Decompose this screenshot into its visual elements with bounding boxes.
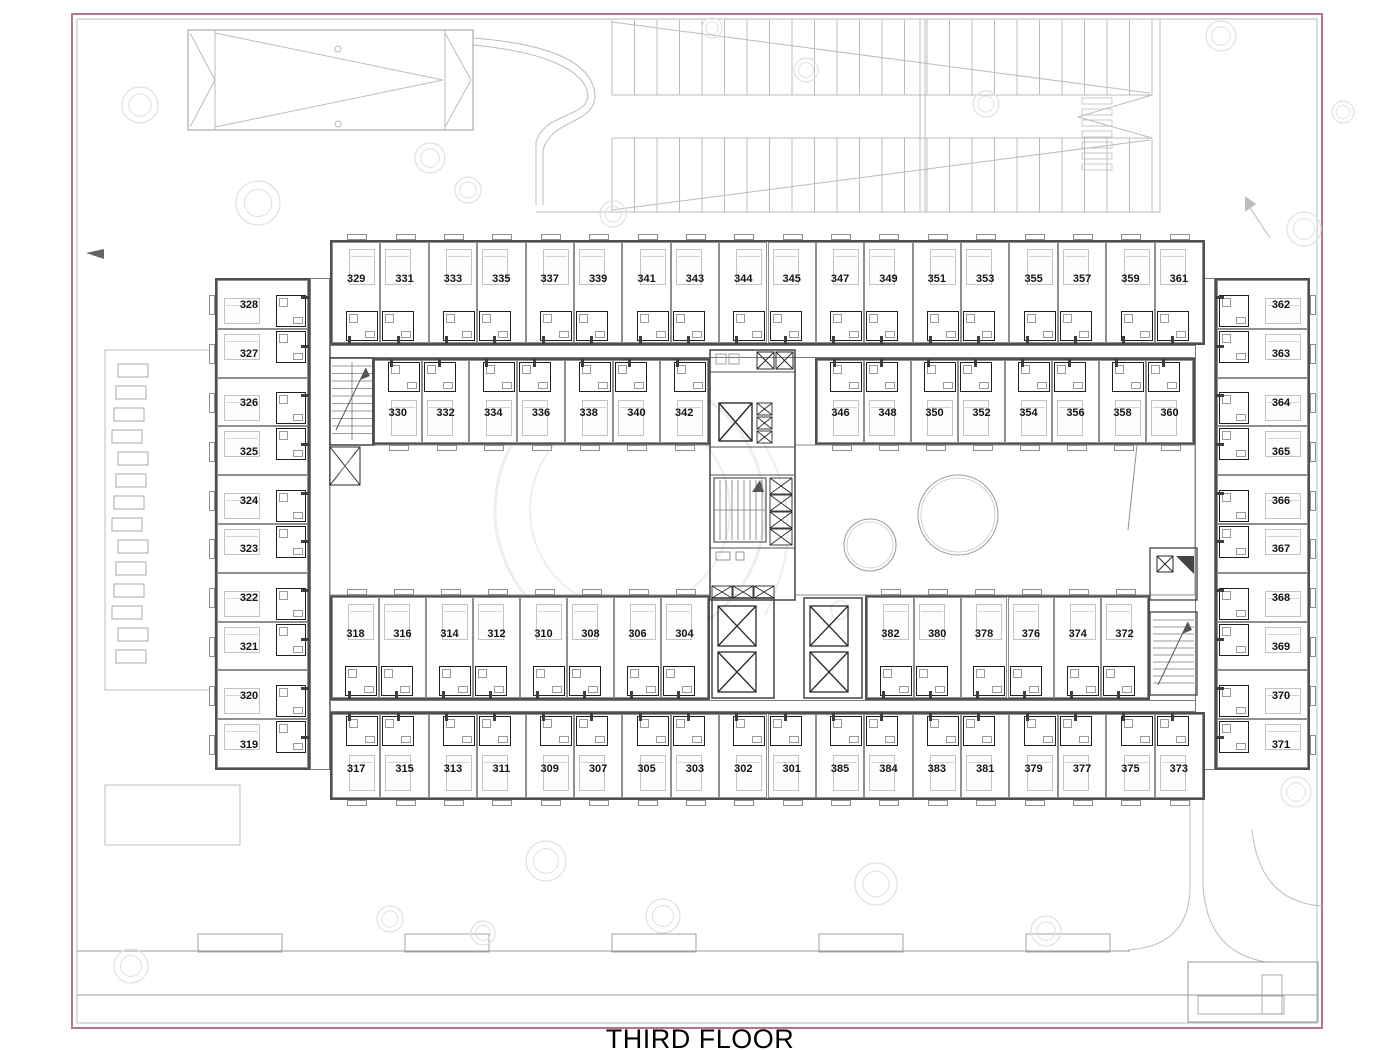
room-346: 346 [817, 360, 864, 443]
room-number-label: 370 [1252, 690, 1310, 702]
door-mark [1122, 336, 1125, 344]
room-379: 379 [1009, 714, 1057, 798]
room-308: 308 [567, 597, 614, 698]
room-380: 380 [914, 597, 961, 698]
balcony-icon [1069, 589, 1089, 595]
door-mark [301, 345, 309, 348]
door-mark [542, 336, 545, 344]
balcony-icon [347, 800, 367, 806]
room-347: 347 [816, 242, 864, 343]
balcony-icon [1020, 445, 1040, 451]
balcony-icon [975, 589, 995, 595]
door-mark [1216, 736, 1224, 739]
door-mark [880, 336, 883, 344]
door-mark [639, 336, 642, 344]
bathroom-pod [276, 588, 306, 620]
room-number-label: 327 [220, 348, 278, 360]
room-number-label: 333 [430, 273, 476, 285]
balcony-icon [209, 491, 215, 511]
balcony-icon [879, 445, 899, 451]
room-355: 355 [1009, 242, 1057, 343]
door-mark [929, 691, 932, 699]
room-number-label: 334 [470, 407, 516, 419]
room-333: 333 [429, 242, 477, 343]
room-number-label: 316 [380, 628, 425, 640]
room-number-label: 356 [1053, 407, 1098, 419]
door-mark [1216, 492, 1224, 495]
door-mark [927, 359, 930, 367]
balcony-icon [492, 234, 512, 240]
room-360: 360 [1146, 360, 1193, 443]
corridor [330, 345, 1205, 358]
room-325: 325 [217, 426, 308, 475]
room-317: 317 [332, 714, 380, 798]
door-mark [1026, 713, 1029, 721]
bathroom-pod [276, 392, 306, 424]
balcony-icon [879, 234, 899, 240]
room-342: 342 [660, 360, 708, 443]
balcony-icon [881, 589, 901, 595]
canopy-roof [188, 30, 473, 130]
door-mark [1216, 638, 1224, 641]
balcony-icon [1121, 800, 1141, 806]
room-number-label: 385 [817, 763, 863, 775]
room-376: 376 [1008, 597, 1055, 698]
room-343: 343 [671, 242, 719, 343]
room-number-label: 309 [527, 763, 573, 775]
door-mark [590, 336, 593, 344]
room-304: 304 [661, 597, 708, 698]
door-mark [1021, 359, 1024, 367]
room-332: 332 [422, 360, 470, 443]
room-377: 377 [1058, 714, 1106, 798]
balcony-icon [209, 735, 215, 755]
room-number-label: 345 [769, 273, 815, 285]
room-348: 348 [864, 360, 911, 443]
balcony-icon [209, 442, 215, 462]
room-316: 316 [379, 597, 426, 698]
balcony-icon [686, 800, 706, 806]
room-number-label: 307 [575, 763, 621, 775]
balcony-icon [1310, 539, 1316, 559]
room-356: 356 [1052, 360, 1099, 443]
balcony-icon [444, 234, 464, 240]
room-number-label: 348 [865, 407, 910, 419]
room-number-label: 358 [1100, 407, 1145, 419]
room-number-label: 377 [1059, 763, 1105, 775]
balcony-icon [627, 445, 647, 451]
door-mark [581, 359, 584, 367]
balcony-icon [1310, 295, 1316, 315]
room-number-label: 357 [1059, 273, 1105, 285]
bathroom-pod [276, 295, 306, 327]
balcony-icon [389, 445, 409, 451]
corridor [330, 700, 1205, 712]
room-314: 314 [426, 597, 473, 698]
room-number-label: 362 [1252, 299, 1310, 311]
door-mark [301, 736, 309, 739]
building-core-linework [0, 0, 1400, 1050]
room-number-label: 340 [614, 407, 660, 419]
curved-road [473, 38, 1160, 212]
balcony-icon [879, 800, 899, 806]
elevator-bank [712, 586, 862, 698]
room-349: 349 [864, 242, 912, 343]
room-384: 384 [864, 714, 912, 798]
room-number-label: 373 [1156, 763, 1202, 775]
balcony-icon [541, 800, 561, 806]
balcony-icon [396, 800, 416, 806]
room-number-label: 337 [527, 273, 573, 285]
room-351: 351 [913, 242, 961, 343]
balcony-icon [629, 589, 649, 595]
balcony-icon [1310, 735, 1316, 755]
room-334: 334 [469, 360, 517, 443]
balcony-icon [1073, 800, 1093, 806]
balcony-icon [589, 234, 609, 240]
balcony-icon [1170, 234, 1190, 240]
room-number-label: 347 [817, 273, 863, 285]
door-mark [628, 359, 631, 367]
room-number-label: 349 [865, 273, 911, 285]
corridor [310, 278, 330, 770]
room-366: 366 [1217, 475, 1308, 524]
floor-title: THIRD FLOOR [0, 1024, 1400, 1050]
room-320: 320 [217, 670, 308, 719]
room-339: 339 [574, 242, 622, 343]
door-mark [882, 691, 885, 699]
balcony-icon [1114, 445, 1134, 451]
balcony-icon [675, 445, 695, 451]
balcony-icon [209, 295, 215, 315]
door-mark [1171, 336, 1174, 344]
room-number-label: 313 [430, 763, 476, 775]
balcony-icon [394, 589, 414, 595]
balcony-icon [535, 589, 555, 595]
door-mark [1216, 589, 1224, 592]
room-323: 323 [217, 524, 308, 573]
door-mark [880, 713, 883, 721]
door-mark [832, 713, 835, 721]
balcony-icon [589, 800, 609, 806]
door-mark [301, 687, 309, 690]
room-number-label: 317 [333, 763, 379, 775]
bathroom-pod [1219, 295, 1249, 327]
door-mark [1115, 359, 1118, 367]
balcony-icon [1067, 445, 1087, 451]
door-mark [977, 336, 980, 344]
room-359: 359 [1106, 242, 1154, 343]
balcony-icon [638, 234, 658, 240]
balcony-icon [484, 445, 504, 451]
balcony-icon [532, 445, 552, 451]
room-315: 315 [380, 714, 428, 798]
balcony-icon [686, 234, 706, 240]
room-number-label: 339 [575, 273, 621, 285]
room-321: 321 [217, 622, 308, 671]
room-number-label: 335 [478, 273, 524, 285]
balcony-icon [580, 445, 600, 451]
room-number-label: 331 [381, 273, 427, 285]
room-number-label: 351 [914, 273, 960, 285]
balcony-icon [441, 589, 461, 595]
door-mark [1216, 540, 1224, 543]
room-number-label: 329 [333, 273, 379, 285]
door-mark [301, 492, 309, 495]
balcony-icon [783, 234, 803, 240]
parking-stalls [612, 20, 1160, 212]
door-mark [1171, 713, 1174, 721]
room-number-label: 344 [720, 273, 766, 285]
door-mark [1216, 394, 1224, 397]
door-mark [348, 713, 351, 721]
balcony-icon [1310, 686, 1316, 706]
balcony-icon [582, 589, 602, 595]
room-number-label: 367 [1252, 543, 1310, 555]
door-mark [348, 336, 351, 344]
room-350: 350 [911, 360, 958, 443]
room-309: 309 [526, 714, 574, 798]
room-number-label: 336 [518, 407, 564, 419]
room-381: 381 [961, 714, 1009, 798]
balcony-icon [976, 800, 996, 806]
door-mark [735, 713, 738, 721]
door-mark [445, 713, 448, 721]
balcony-icon [1310, 344, 1316, 364]
balcony-icon [209, 637, 215, 657]
door-mark [880, 359, 883, 367]
balcony-icon [831, 800, 851, 806]
stairs-icon-right [1150, 548, 1197, 695]
room-number-label: 328 [220, 299, 278, 311]
room-number-label: 326 [220, 397, 278, 409]
room-337: 337 [526, 242, 574, 343]
room-363: 363 [1217, 329, 1308, 378]
room-312: 312 [473, 597, 520, 698]
door-mark [542, 713, 545, 721]
room-367: 367 [1217, 524, 1308, 573]
room-number-label: 318 [333, 628, 378, 640]
room-370: 370 [1217, 670, 1308, 719]
room-number-label: 353 [962, 273, 1008, 285]
room-number-label: 308 [568, 628, 613, 640]
room-344: 344 [719, 242, 767, 343]
room-311: 311 [477, 714, 525, 798]
room-number-label: 319 [220, 739, 278, 751]
balcony-icon [928, 234, 948, 240]
room-number-label: 303 [672, 763, 718, 775]
room-327: 327 [217, 329, 308, 378]
room-number-label: 330 [375, 407, 421, 419]
door-mark [301, 443, 309, 446]
balcony-icon [1025, 234, 1045, 240]
room-331: 331 [380, 242, 428, 343]
door-mark [1023, 691, 1026, 699]
door-mark [301, 589, 309, 592]
door-mark [1216, 687, 1224, 690]
room-340: 340 [613, 360, 661, 443]
room-303: 303 [671, 714, 719, 798]
room-385: 385 [816, 714, 864, 798]
door-mark [784, 713, 787, 721]
room-336: 336 [517, 360, 565, 443]
room-number-label: 352 [959, 407, 1004, 419]
room-number-label: 350 [912, 407, 957, 419]
balcony-icon [976, 234, 996, 240]
room-number-label: 375 [1107, 763, 1153, 775]
balcony-icon [1073, 234, 1093, 240]
room-number-label: 374 [1055, 628, 1100, 640]
balcony-icon [347, 234, 367, 240]
balcony-icon [1310, 442, 1316, 462]
room-362: 362 [1217, 280, 1308, 329]
balcony-icon [831, 234, 851, 240]
door-mark [438, 359, 441, 367]
door-mark [301, 394, 309, 397]
room-number-label: 360 [1147, 407, 1192, 419]
room-329: 329 [332, 242, 380, 343]
balcony-icon [926, 445, 946, 451]
room-352: 352 [958, 360, 1005, 443]
balcony-icon [973, 445, 993, 451]
door-mark [390, 359, 393, 367]
balcony-icon [396, 234, 416, 240]
balcony-icon [1310, 588, 1316, 608]
room-number-label: 341 [623, 273, 669, 285]
room-358: 358 [1099, 360, 1146, 443]
door-mark [1216, 443, 1224, 446]
room-number-label: 376 [1009, 628, 1054, 640]
room-326: 326 [217, 378, 308, 427]
door-mark [301, 540, 309, 543]
room-number-label: 304 [662, 628, 707, 640]
room-number-label: 359 [1107, 273, 1153, 285]
room-number-label: 381 [962, 763, 1008, 775]
door-mark [735, 336, 738, 344]
room-306: 306 [614, 597, 661, 698]
room-324: 324 [217, 475, 308, 524]
room-364: 364 [1217, 378, 1308, 427]
room-number-label: 355 [1010, 273, 1056, 285]
door-mark [1216, 345, 1224, 348]
bathroom-pod [276, 490, 306, 522]
door-mark [977, 713, 980, 721]
door-mark [489, 691, 492, 699]
room-number-label: 363 [1252, 348, 1310, 360]
balcony-icon [1310, 393, 1316, 413]
door-mark [1074, 336, 1077, 344]
door-mark [833, 359, 836, 367]
room-number-label: 305 [623, 763, 669, 775]
balcony-icon [832, 445, 852, 451]
bathroom-pod [1219, 490, 1249, 522]
door-mark [301, 638, 309, 641]
balcony-icon [209, 539, 215, 559]
room-number-label: 338 [566, 407, 612, 419]
room-382: 382 [867, 597, 914, 698]
balcony-icon [209, 686, 215, 706]
room-number-label: 314 [427, 628, 472, 640]
room-330: 330 [374, 360, 422, 443]
room-373: 373 [1155, 714, 1203, 798]
balcony-icon [1310, 637, 1316, 657]
room-number-label: 379 [1010, 763, 1056, 775]
balcony-icon [1116, 589, 1136, 595]
balcony-icon [1121, 234, 1141, 240]
corridor [1195, 278, 1215, 770]
room-number-label: 368 [1252, 592, 1310, 604]
room-number-label: 324 [220, 495, 278, 507]
door-mark [1122, 713, 1125, 721]
door-mark [1074, 713, 1077, 721]
room-number-label: 383 [914, 763, 960, 775]
floor-plan-sheet: 3293313333353373393413433443453473493513… [0, 0, 1400, 1050]
door-mark [677, 691, 680, 699]
room-number-label: 332 [423, 407, 469, 419]
room-number-label: 322 [220, 592, 278, 604]
room-305: 305 [622, 714, 670, 798]
room-374: 374 [1054, 597, 1101, 698]
room-375: 375 [1106, 714, 1154, 798]
room-number-label: 301 [769, 763, 815, 775]
room-354: 354 [1005, 360, 1052, 443]
balcony-icon [1025, 800, 1045, 806]
room-number-label: 315 [381, 763, 427, 775]
room-number-label: 369 [1252, 641, 1310, 653]
door-mark [630, 691, 633, 699]
central-core [710, 350, 795, 600]
balcony-icon [437, 445, 457, 451]
door-mark [536, 691, 539, 699]
door-mark [687, 336, 690, 344]
room-310: 310 [520, 597, 567, 698]
room-number-label: 365 [1252, 446, 1310, 458]
door-mark [639, 713, 642, 721]
bathroom-pod [1219, 392, 1249, 424]
balcony-icon [347, 589, 367, 595]
room-number-label: 323 [220, 543, 278, 555]
door-mark [1216, 296, 1224, 299]
room-353: 353 [961, 242, 1009, 343]
room-number-label: 382 [868, 628, 913, 640]
door-mark [1117, 691, 1120, 699]
balcony-icon [492, 800, 512, 806]
door-mark [493, 713, 496, 721]
room-number-label: 321 [220, 641, 278, 653]
balcony-icon [734, 234, 754, 240]
room-383: 383 [913, 714, 961, 798]
room-number-label: 371 [1252, 739, 1310, 751]
door-mark [929, 713, 932, 721]
door-mark [784, 336, 787, 344]
balcony-icon [541, 234, 561, 240]
balcony-icon [928, 589, 948, 595]
door-mark [929, 336, 932, 344]
door-mark [1026, 336, 1029, 344]
door-mark [348, 691, 351, 699]
site-plan-linework [0, 0, 1400, 1050]
room-357: 357 [1058, 242, 1106, 343]
room-319: 319 [217, 719, 308, 768]
room-318: 318 [332, 597, 379, 698]
door-mark [397, 713, 400, 721]
room-number-label: 372 [1102, 628, 1147, 640]
balcony-icon [209, 393, 215, 413]
balcony-icon [488, 589, 508, 595]
door-mark [976, 691, 979, 699]
balcony-icon [444, 800, 464, 806]
room-369: 369 [1217, 622, 1308, 671]
